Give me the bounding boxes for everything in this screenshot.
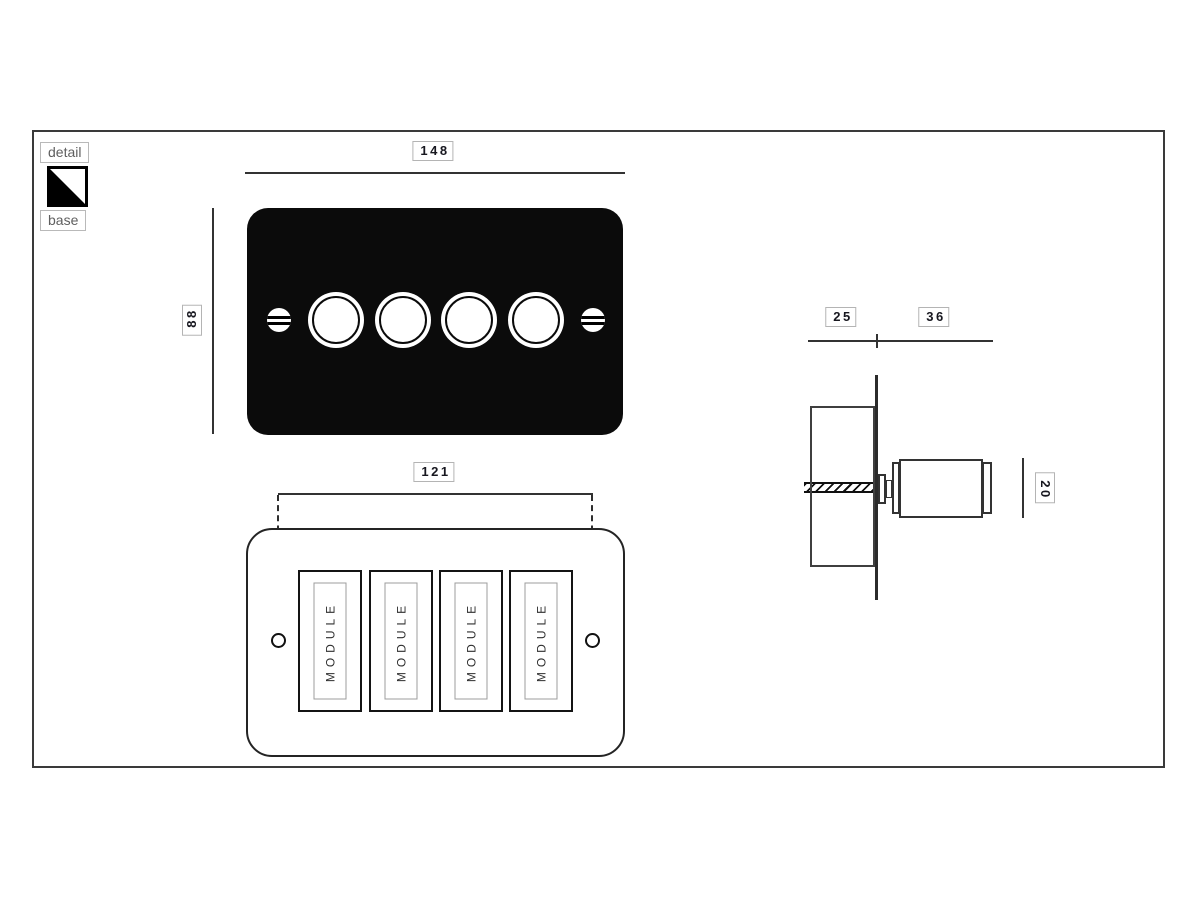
module-inner-frame: MODULE [455,583,488,700]
faceplate-front-view [247,208,623,435]
screw-slot [267,316,291,319]
screw-left-icon [267,308,291,332]
technical-drawing-page: detail base 148 88 121 MODULE MODULE [0,0,1200,900]
module-inner-frame: MODULE [314,583,347,700]
module-slot-4: MODULE [509,570,573,712]
module-inner-frame: MODULE [525,583,558,700]
dimension-height-88: 88 [182,304,202,335]
module-inner-frame: MODULE [385,583,418,700]
knob-collar [878,474,886,504]
module-label: MODULE [464,600,478,681]
dimmer-knob-1 [308,292,364,348]
dimmer-knob-2 [375,292,431,348]
module-slot-3: MODULE [439,570,503,712]
module-label: MODULE [323,600,337,681]
module-slot-1: MODULE [298,570,362,712]
mounting-hole-left [271,633,286,648]
module-slot-2: MODULE [369,570,433,712]
screw-slot [581,316,605,319]
legend-detail-label: detail [40,142,89,163]
mounting-hole-right [585,633,600,648]
module-label: MODULE [534,600,548,681]
knob-rim-right [982,462,992,514]
dimension-line-height [212,208,214,434]
recessed-module-box [810,406,875,567]
dimension-line-depth [808,340,993,342]
screw-right-icon [581,308,605,332]
dimension-line-hole-spacing [278,493,593,495]
module-label: MODULE [394,600,408,681]
screw-slot [267,322,291,325]
dimension-hole-spacing-121: 121 [413,462,454,482]
legend-base-label: base [40,210,86,231]
dimension-line-knob [1022,458,1024,518]
dimension-width-148: 148 [412,141,453,161]
dimension-depth-behind-25: 25 [825,307,856,327]
dimension-knob-20: 20 [1035,472,1055,503]
dimmer-knob-3 [441,292,497,348]
dimmer-knob-4 [508,292,564,348]
dimension-line-width [245,172,625,174]
finish-swatch-icon [47,166,88,207]
knob-body-side [899,459,983,518]
dimension-projection-36: 36 [918,307,949,327]
screw-slot [581,322,605,325]
dimension-tick [876,334,878,348]
